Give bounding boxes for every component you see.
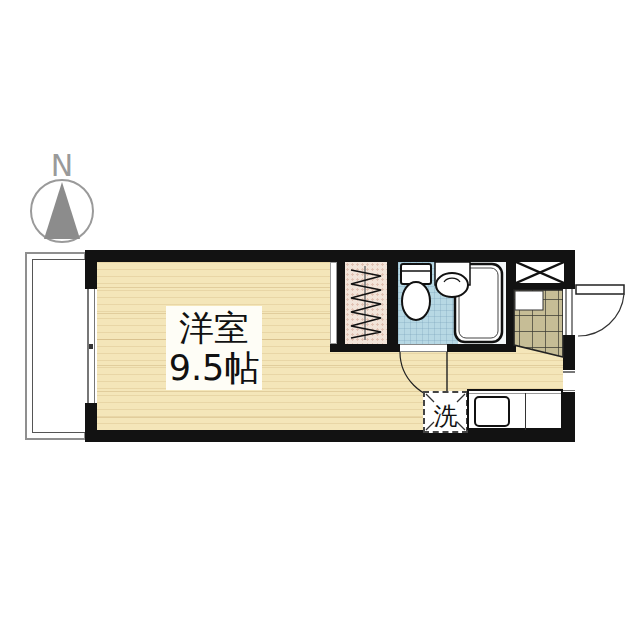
balcony-inner-line — [32, 259, 86, 433]
room-label-box: 洋室 9.5帖 — [166, 306, 262, 390]
wall-bottom — [85, 430, 575, 442]
genkan-step — [515, 291, 543, 310]
window-frame-line — [563, 390, 575, 392]
north-arrow-icon — [40, 180, 84, 242]
closet-hanger-pipe-icon — [345, 262, 387, 344]
bathroom — [398, 262, 506, 344]
wall-closet-bathroom — [387, 250, 398, 344]
entrance-door-swing-arc — [578, 294, 624, 336]
right-window — [563, 370, 575, 392]
counter-divider — [525, 393, 526, 430]
room-size: 9.5帖 — [169, 348, 260, 388]
window-pane-line — [94, 289, 96, 403]
entrance-door-leaf — [576, 285, 624, 294]
bathroom-fixtures — [398, 262, 506, 344]
closet-door — [330, 262, 337, 344]
balcony-sliding-window — [85, 289, 97, 403]
room-name: 洋室 — [179, 308, 249, 348]
wall-left-lower — [85, 403, 97, 442]
kitchen-sink — [474, 396, 510, 427]
window-frame-line — [563, 371, 575, 373]
washer-label: 洗 — [425, 400, 466, 432]
closet — [345, 262, 387, 344]
sink-icon — [435, 262, 470, 297]
wall-top — [85, 250, 575, 262]
toilet-icon — [401, 264, 431, 320]
north-label: N — [30, 148, 94, 183]
counter-edge-line — [469, 393, 561, 394]
pipe-shaft-box — [516, 262, 564, 283]
wall-left-upper — [85, 250, 97, 289]
wall-closet-left — [337, 250, 345, 344]
pipe-shaft-x-icon — [516, 262, 564, 283]
window-sash-mark — [89, 344, 93, 349]
entrance-door — [565, 275, 640, 345]
floor-plan: N — [0, 0, 640, 640]
wall-right-lower — [563, 392, 575, 442]
kitchen-counter — [467, 389, 563, 430]
washing-machine-space: 洗 — [423, 391, 468, 433]
